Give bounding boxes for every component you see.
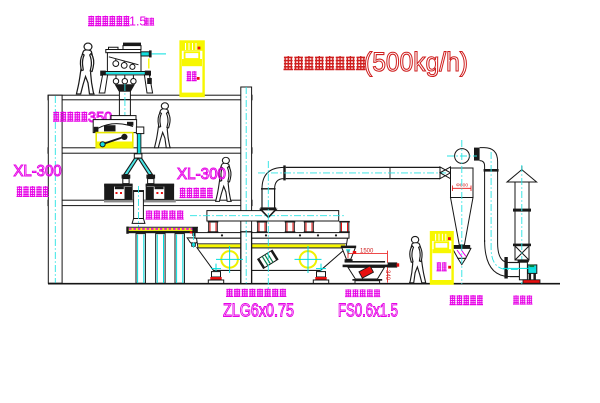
svg-text:(500kg/h): (500kg/h) <box>364 47 468 77</box>
svg-text:340: 340 <box>384 270 390 281</box>
svg-text:XL-300: XL-300 <box>14 163 62 180</box>
svg-text:XL-300: XL-300 <box>177 166 226 183</box>
svg-text:FS0.6x1.5: FS0.6x1.5 <box>338 301 398 321</box>
svg-text:1500: 1500 <box>360 249 374 255</box>
svg-text:ZLG6x0.75: ZLG6x0.75 <box>223 301 294 321</box>
svg-text:1.5: 1.5 <box>129 15 146 29</box>
